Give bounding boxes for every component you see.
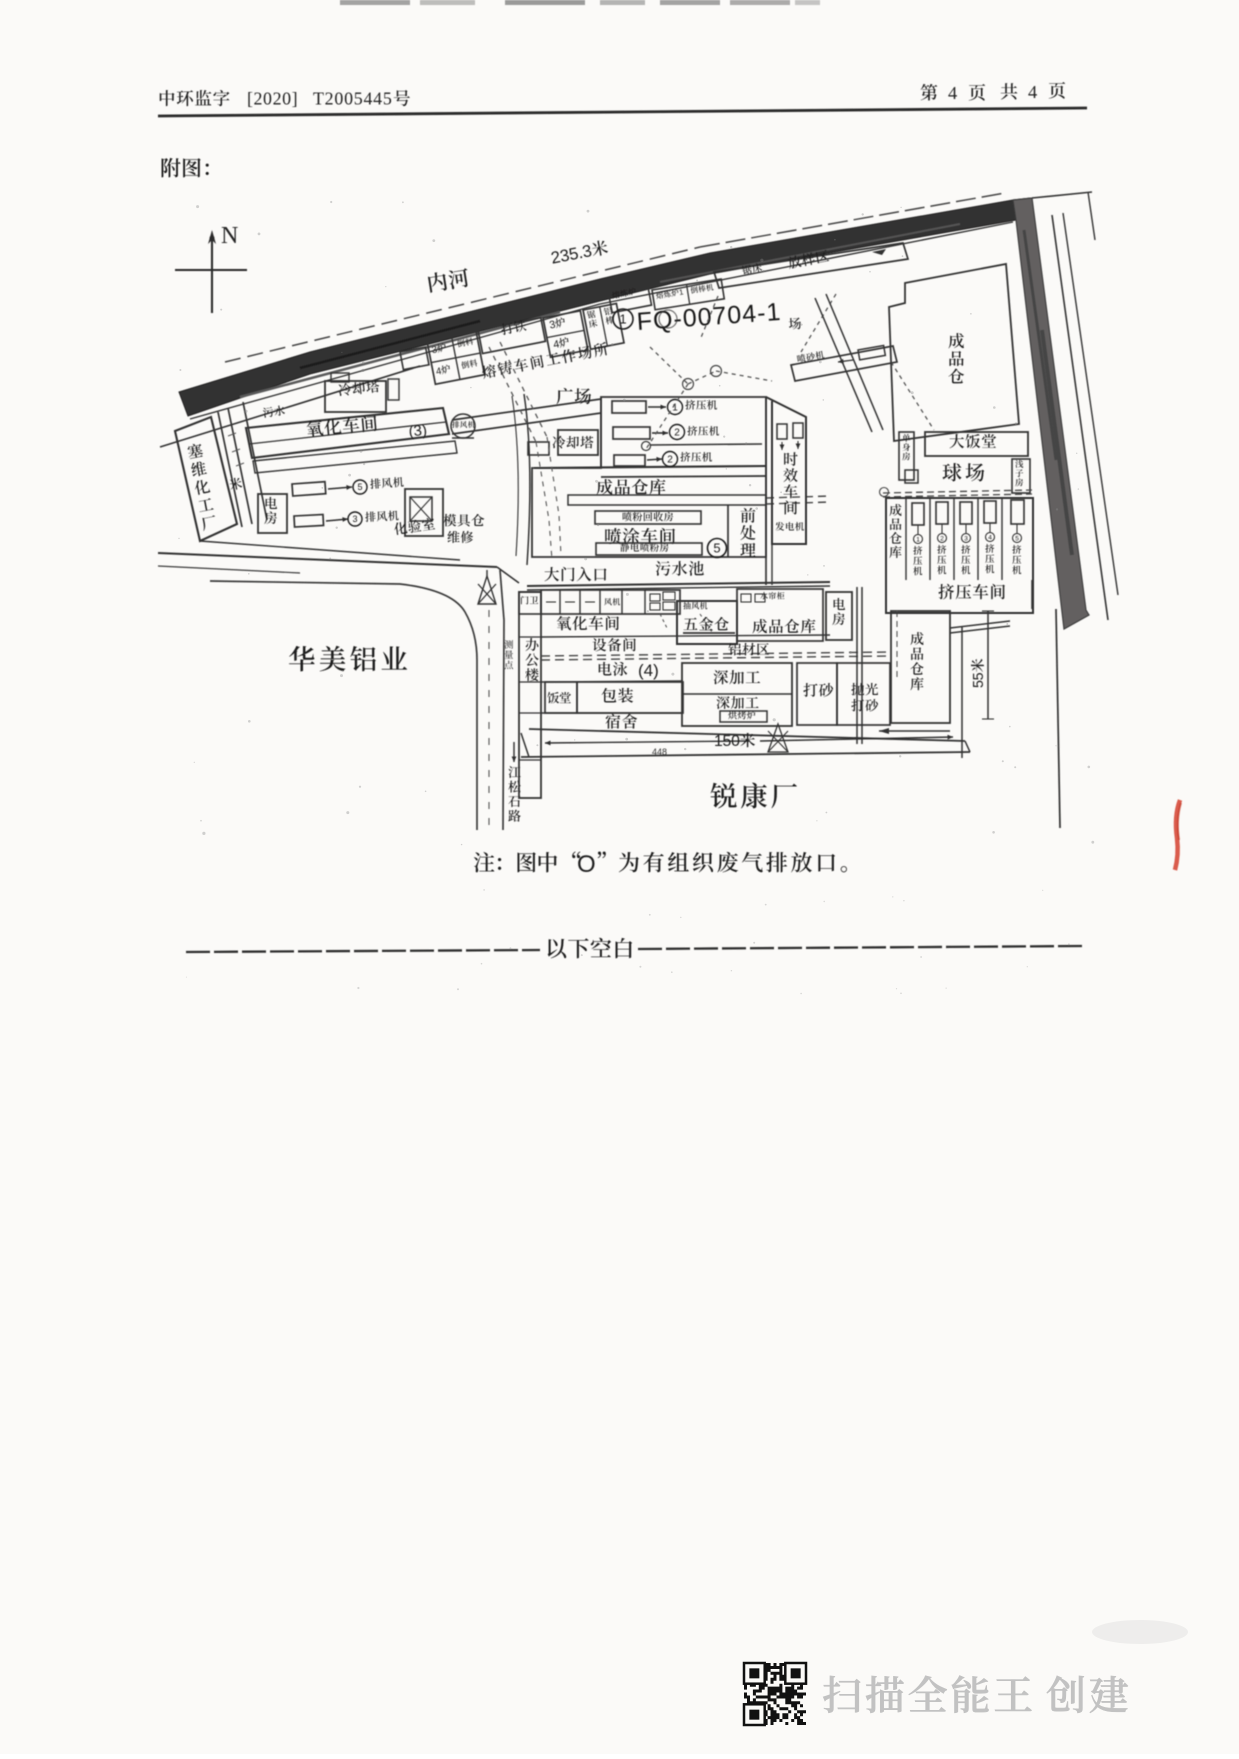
svg-text:5: 5 [713,541,720,556]
svg-text:1: 1 [672,403,678,414]
svg-text:5: 5 [1015,535,1019,542]
svg-text:1: 1 [916,536,920,543]
svg-text:3: 3 [964,535,968,542]
svg-text:4: 4 [1028,82,1037,102]
svg-text:N: N [221,223,238,249]
svg-text:448: 448 [652,747,667,757]
svg-text:150: 150 [714,733,740,750]
svg-text:4: 4 [988,534,992,541]
svg-text:2: 2 [674,428,680,439]
svg-text:4: 4 [948,83,957,103]
svg-text:O: O [577,851,596,878]
svg-text:3: 3 [352,514,357,524]
svg-text:55: 55 [971,672,987,688]
svg-text:(4): (4) [638,661,659,680]
svg-text:2: 2 [667,455,673,466]
svg-text:5: 5 [357,482,362,492]
svg-text:1: 1 [619,312,626,327]
svg-text:2: 2 [940,535,944,542]
svg-text:[2020]: [2020] [247,89,298,109]
svg-text:(3): (3) [408,422,428,441]
svg-text:T2005445: T2005445 [313,89,392,109]
